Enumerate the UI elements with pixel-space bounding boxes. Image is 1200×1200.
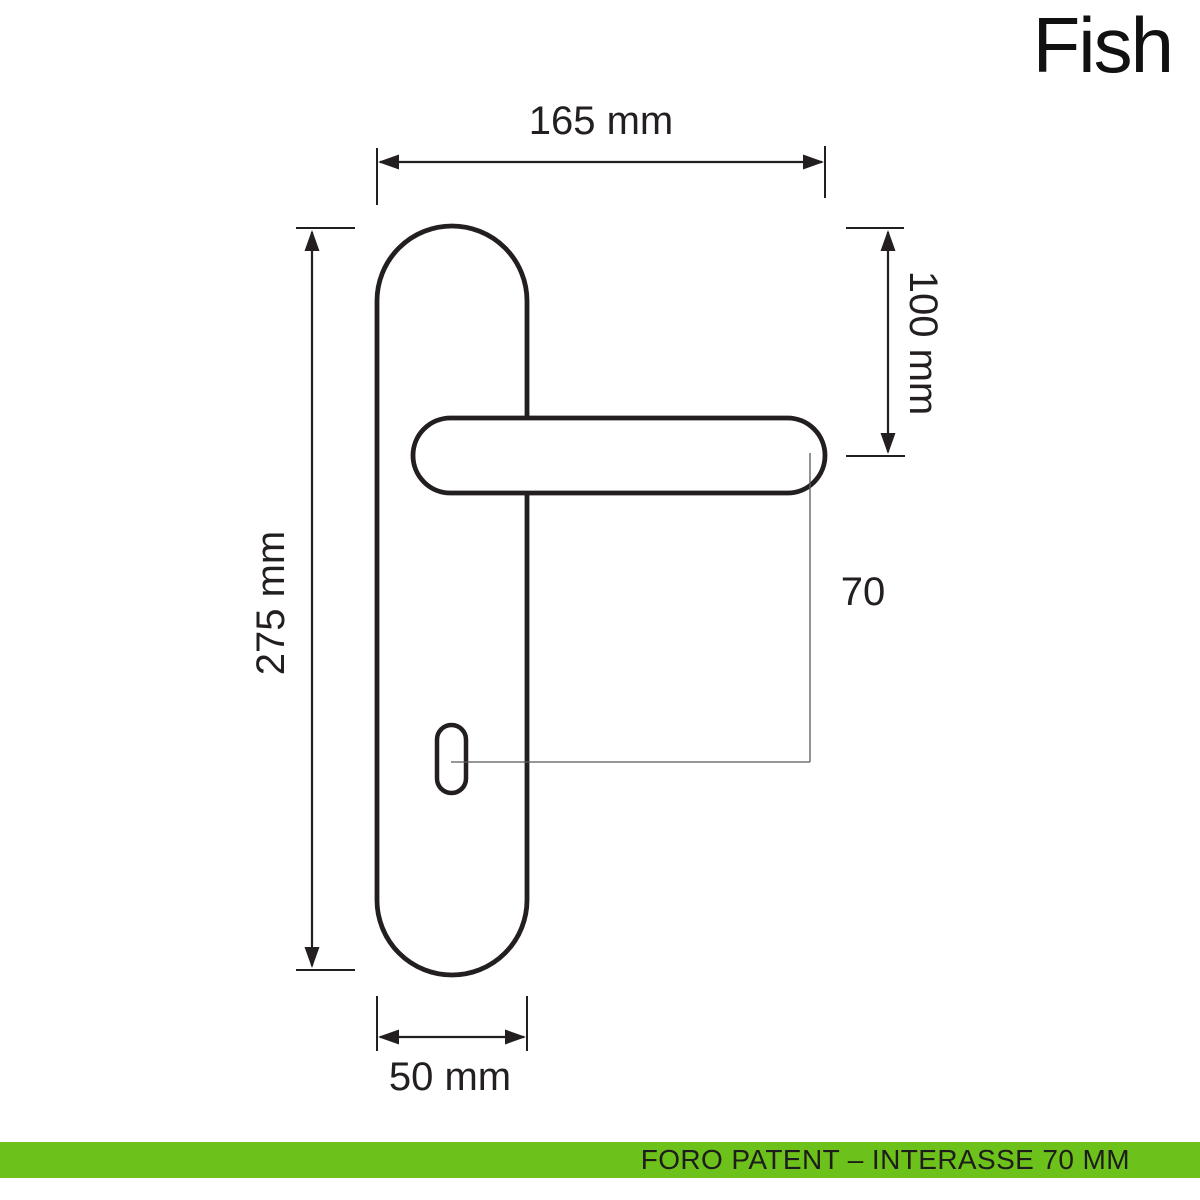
arrowhead-left-icon (378, 155, 399, 170)
keyhole-outline (437, 725, 466, 793)
arrowhead-up-icon (305, 230, 320, 251)
technical-drawing: 165 mm 100 mm 275 mm 70 50 mm (0, 0, 1200, 1200)
arrowhead-right-icon (803, 155, 824, 170)
dimension-label-plate-top-to-handle-axis: 100 mm (901, 271, 945, 416)
dimension-plate-height: 275 mm (249, 228, 355, 970)
arrowhead-down-icon (305, 947, 320, 968)
dimension-total-width: 165 mm (377, 99, 825, 205)
dimension-label-plate-width: 50 mm (389, 1055, 511, 1099)
dimension-label-handle-axis-to-keyhole: 70 (841, 570, 886, 614)
arrowhead-left-icon (378, 1030, 399, 1045)
dimension-plate-top-to-handle-axis: 100 mm (846, 228, 945, 456)
footer-banner: FORO PATENT – INTERASSE 70 MM (0, 1142, 1200, 1178)
backplate-outline (377, 226, 527, 975)
dimension-plate-width: 50 mm (377, 996, 527, 1099)
arrowhead-right-icon (505, 1030, 526, 1045)
handle-lever-outline (413, 418, 825, 493)
arrowhead-down-icon (881, 433, 896, 454)
dimension-label-plate-height: 275 mm (249, 531, 293, 676)
page: { "title": "Fish", "drawing": { "subject… (0, 0, 1200, 1200)
arrowhead-up-icon (881, 230, 896, 251)
footer-spec-text: FORO PATENT – INTERASSE 70 MM (641, 1144, 1130, 1176)
dimension-label-total-width: 165 mm (529, 99, 674, 143)
